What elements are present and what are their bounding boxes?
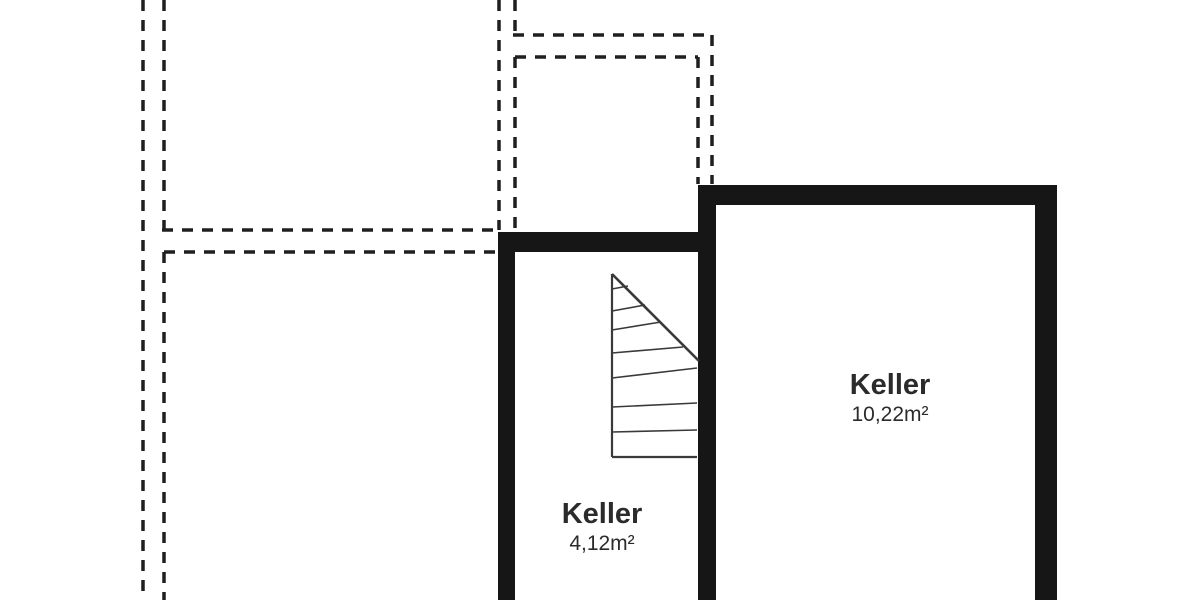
- room-label-keller-large: Keller 10,22m²: [790, 370, 990, 427]
- room-area: 10,22m²: [790, 403, 990, 427]
- room-area: 4,12m²: [502, 532, 702, 556]
- room-name: Keller: [790, 370, 990, 401]
- staircase: [612, 274, 699, 457]
- wall-stair-room-top: [498, 232, 716, 252]
- stair-step-line: [612, 403, 697, 407]
- stair-step-line: [612, 430, 697, 432]
- wall-big-room-top: [698, 185, 1057, 205]
- stair-step-line: [612, 322, 661, 330]
- wall-big-room-right: [1035, 185, 1057, 600]
- stair-step-line: [612, 368, 697, 378]
- stair-step-line: [612, 347, 683, 353]
- room-name: Keller: [502, 499, 702, 530]
- stair-step-line: [612, 305, 645, 311]
- floor-plan: Keller 4,12m² Keller 10,22m²: [0, 0, 1200, 600]
- room-label-keller-small: Keller 4,12m²: [502, 499, 702, 556]
